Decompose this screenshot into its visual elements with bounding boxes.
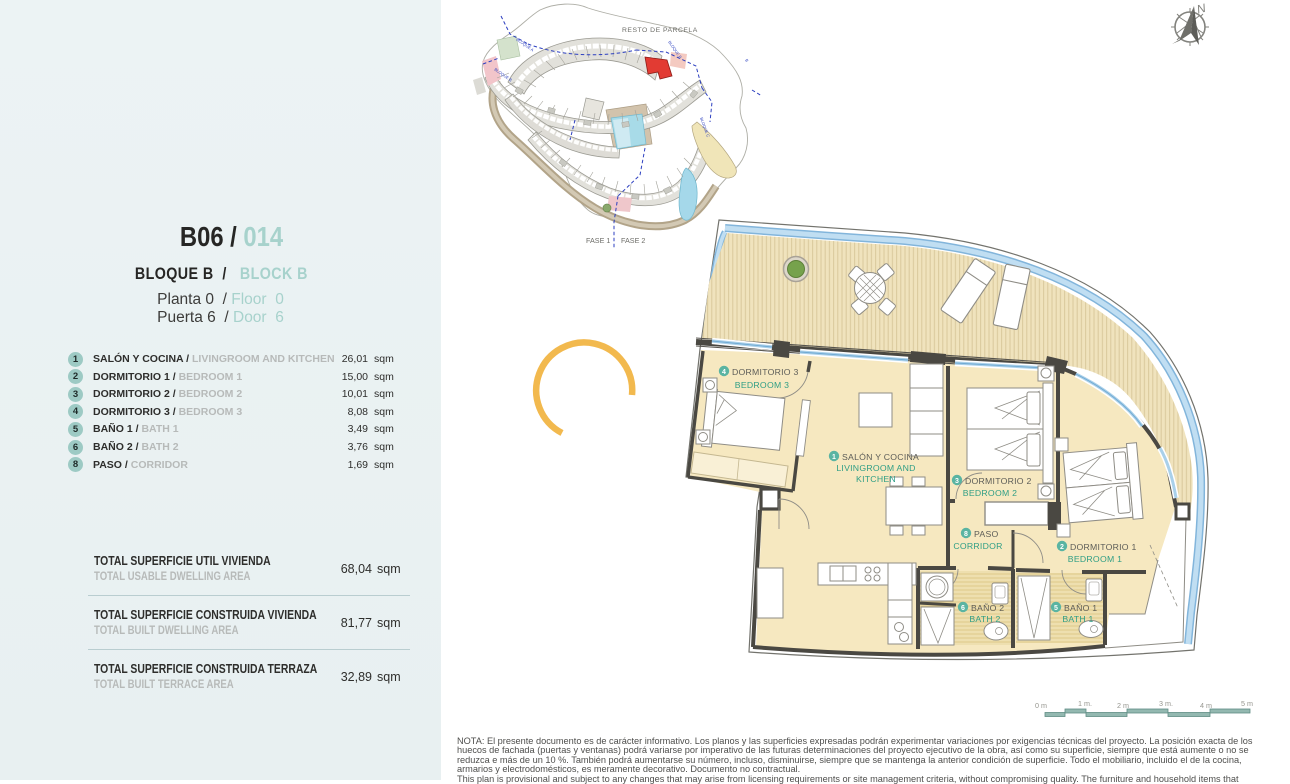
svg-text:BEDROOM 3: BEDROOM 3 bbox=[735, 380, 789, 390]
svg-text:8: 8 bbox=[964, 531, 968, 538]
svg-text:DORMITORIO 1: DORMITORIO 1 bbox=[1070, 542, 1137, 552]
svg-text:SALÓN Y COCINA: SALÓN Y COCINA bbox=[842, 452, 919, 462]
svg-text:DORMITORIO 3: DORMITORIO 3 bbox=[732, 367, 799, 377]
svg-text:BEDROOM 2: BEDROOM 2 bbox=[963, 488, 1017, 498]
svg-text:5: 5 bbox=[1054, 605, 1058, 612]
svg-text:3: 3 bbox=[955, 478, 959, 485]
svg-text:KITCHEN: KITCHEN bbox=[856, 474, 896, 484]
svg-text:0 m: 0 m bbox=[1035, 701, 1047, 710]
svg-text:3 m.: 3 m. bbox=[1159, 699, 1173, 708]
svg-text:FASE 1: FASE 1 bbox=[586, 236, 610, 245]
svg-text:2 m: 2 m bbox=[1117, 701, 1129, 710]
svg-text:BATH 2: BATH 2 bbox=[969, 614, 1000, 624]
svg-text:4 m: 4 m bbox=[1200, 701, 1212, 710]
svg-text:BAÑO 2: BAÑO 2 bbox=[971, 603, 1004, 613]
svg-text:BEDROOM 1: BEDROOM 1 bbox=[1068, 554, 1122, 564]
svg-text:2: 2 bbox=[1060, 544, 1064, 551]
svg-text:RESTO DE PARCELA: RESTO DE PARCELA bbox=[622, 27, 698, 34]
svg-text:BAÑO 1: BAÑO 1 bbox=[1064, 603, 1097, 613]
svg-text:4: 4 bbox=[722, 369, 726, 376]
svg-text:CORRIDOR: CORRIDOR bbox=[953, 541, 1002, 551]
svg-text:5 m: 5 m bbox=[1241, 699, 1253, 708]
svg-text:N: N bbox=[1195, 1, 1207, 17]
svg-text:BATH 1: BATH 1 bbox=[1062, 614, 1093, 624]
svg-text:6: 6 bbox=[961, 605, 965, 612]
svg-text:PASO: PASO bbox=[974, 529, 999, 539]
svg-text:LIVINGROOM AND: LIVINGROOM AND bbox=[836, 463, 915, 473]
svg-text:DORMITORIO 2: DORMITORIO 2 bbox=[965, 476, 1032, 486]
svg-text:1 m.: 1 m. bbox=[1078, 699, 1092, 708]
svg-text:FASE 2: FASE 2 bbox=[621, 236, 645, 245]
svg-text:1: 1 bbox=[832, 454, 836, 461]
